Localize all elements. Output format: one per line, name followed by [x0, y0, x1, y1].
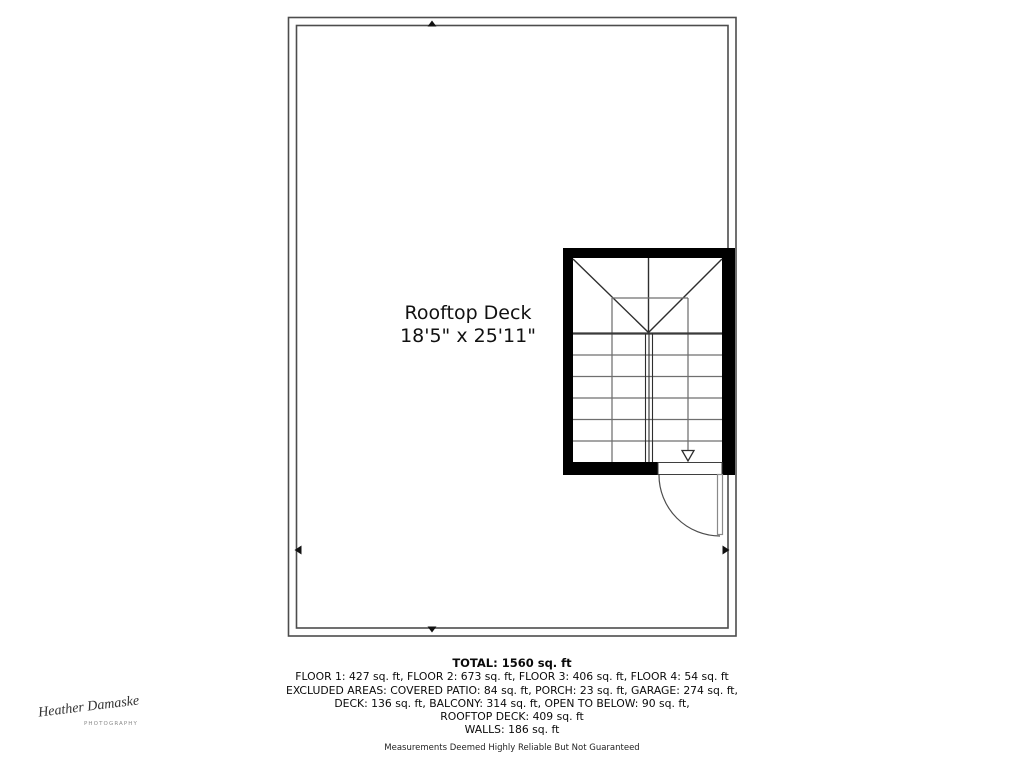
summary-line-rooftop-deck: ROOFTOP DECK: 409 sq. ft [0, 710, 1024, 723]
summary-line-excluded: EXCLUDED AREAS: COVERED PATIO: 84 sq. ft… [0, 684, 1024, 697]
stair-frame-top [563, 248, 735, 258]
door-leaf [718, 475, 723, 535]
stair-frame-left [563, 248, 573, 475]
wall-marker-left-icon [295, 546, 302, 555]
room-label: Rooftop Deck 18'5" x 25'11" [338, 302, 598, 348]
wall-marker-bottom-icon [428, 627, 437, 633]
stairs-down-arrow-icon [682, 451, 694, 462]
summary-line-floors: FLOOR 1: 427 sq. ft, FLOOR 2: 673 sq. ft… [0, 670, 1024, 683]
total-area-line: TOTAL: 1560 sq. ft [0, 657, 1024, 670]
stair-frame-right [722, 248, 735, 475]
staircase [563, 248, 735, 475]
measurement-disclaimer: Measurements Deemed Highly Reliable But … [0, 743, 1024, 753]
room-dimensions: 18'5" x 25'11" [338, 325, 598, 348]
floor-plan-drawing [0, 0, 1024, 768]
room-name: Rooftop Deck [338, 302, 598, 325]
floor-plan-page: Rooftop Deck 18'5" x 25'11" TOTAL: 1560 … [0, 0, 1024, 768]
door-opening [658, 463, 722, 475]
door-swing-arc [659, 475, 720, 536]
wall-marker-top-icon [428, 21, 437, 27]
photographer-signature: Heather Damaske [37, 692, 148, 721]
summary-line-walls: WALLS: 186 sq. ft [0, 723, 1024, 736]
area-summary: TOTAL: 1560 sq. ft FLOOR 1: 427 sq. ft, … [0, 657, 1024, 753]
summary-line-deck-balcony: DECK: 136 sq. ft, BALCONY: 314 sq. ft, O… [0, 697, 1024, 710]
photographer-watermark: Heather Damaske PHOTOGRAPHY [34, 694, 144, 730]
door [658, 463, 723, 537]
photographer-subtitle: PHOTOGRAPHY [84, 721, 138, 727]
